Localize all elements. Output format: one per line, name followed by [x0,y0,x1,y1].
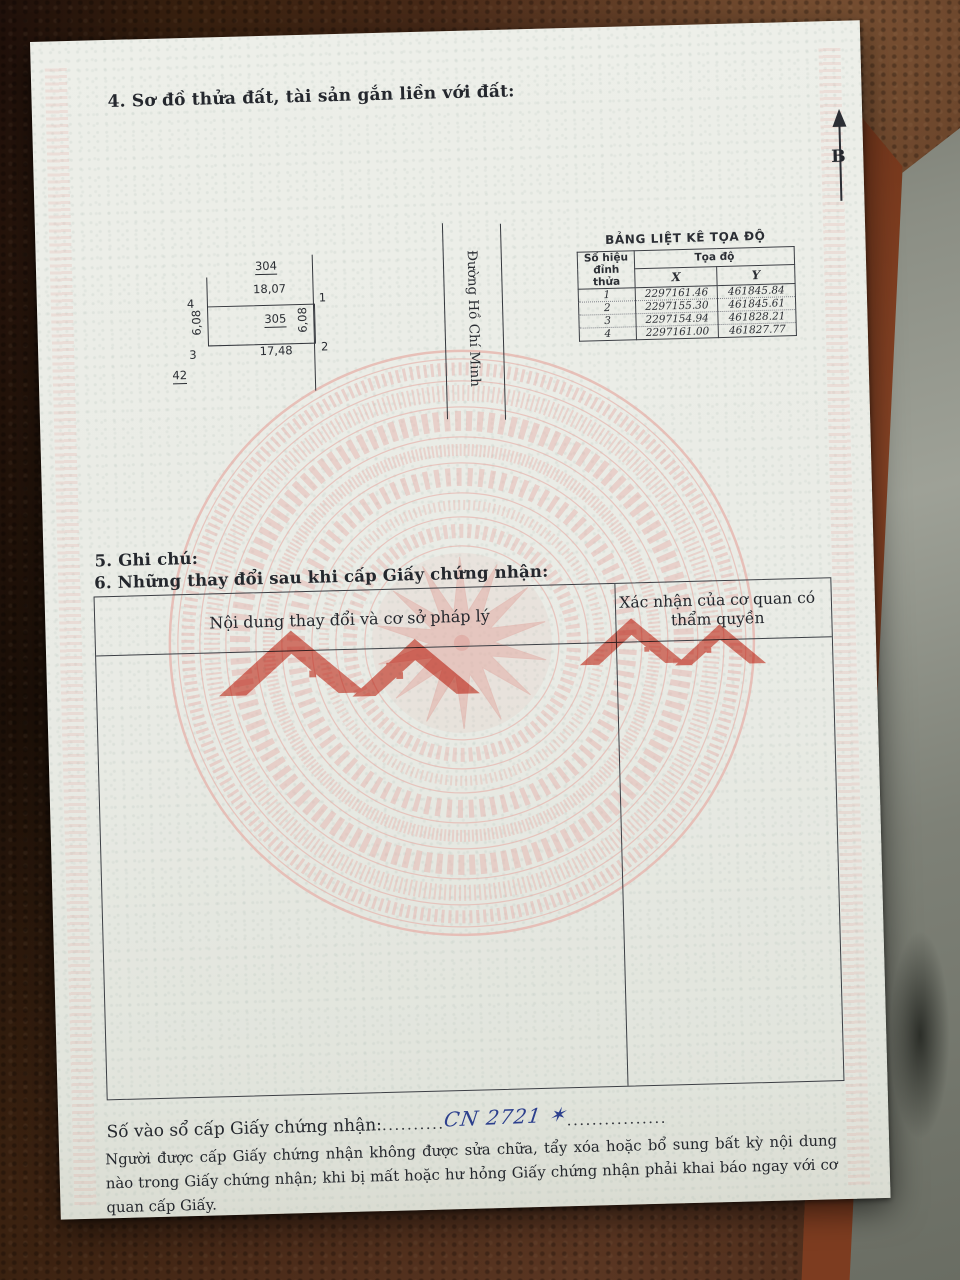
coordinate-table: Số hiệu đỉnh thửa Tọa độ X Y 1 2297161.4… [577,246,797,342]
registry-number-handwritten: CN 2721 ✶ [443,1102,569,1131]
coord-y: 461845.84 [717,284,795,299]
edge-length-bottom: 17,48 [248,343,304,358]
dotted-leader: .......... [382,1115,445,1135]
section5-title: 5. Ghi chú: [94,549,198,571]
adjacent-parcel-top: 304 [244,258,288,273]
vertex-1: 1 [319,290,327,304]
vertex-2: 2 [321,339,329,353]
parcel-diagram: 304 18,07 305 17,48 6,08 6,08 4 1 3 2 42 [146,253,380,399]
vertex-id: 4 [579,327,637,341]
adjacent-parcel-bottom: 42 [165,368,195,383]
certificate-page: 4. Sơ đồ thửa đất, tài sản gắn liền với … [30,20,891,1219]
realestate-roof-watermark-icon [215,621,497,704]
road-name: Đường Hồ Chí Minh [463,228,484,408]
coord-y: 461827.77 [718,323,796,338]
coord-y: 461828.21 [718,310,796,325]
road-edge-right [500,224,506,420]
registry-label: Số vào sổ cấp Giấy chứng nhận: [106,1115,382,1142]
coord-header-x: X [635,266,717,288]
dotted-leader: ................ [566,1109,667,1130]
road: Đường Hồ Chí Minh [435,221,520,423]
north-arrow: B [825,108,856,205]
vertex-3: 3 [189,348,197,362]
parcel-number: 305 [253,311,297,326]
coord-x: 2297161.00 [636,325,718,340]
edge-length-top: 18,07 [241,281,297,296]
boundary-line-ext [206,277,208,307]
coord-header-y: Y [717,264,795,286]
realestate-roof-watermark-icon [577,611,778,672]
road-edge-left [442,223,448,419]
vertex-4: 4 [187,297,195,311]
section4-title: 4. Sơ đồ thửa đất, tài sản gắn liền với … [107,81,515,112]
coord-header-vertex: Số hiệu đỉnh thửa [577,251,635,290]
fabric-shadow [890,930,950,1140]
coord-table-title: BẢNG LIỆT KÊ TỌA ĐỘ [576,228,794,248]
north-label: B [831,147,846,167]
edge-length-right: 6,08 [295,303,310,337]
